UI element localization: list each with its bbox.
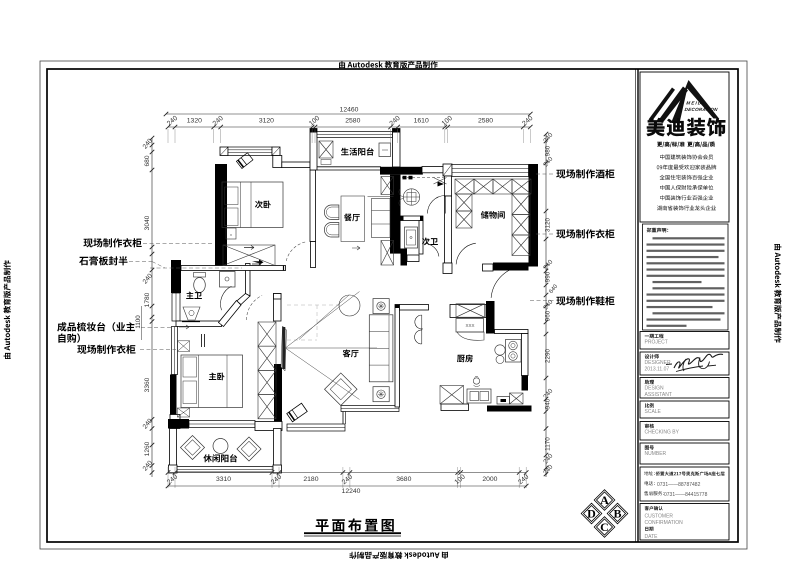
svg-text:CUSTOMER: CUSTOMER [645,514,674,520]
svg-text:1260: 1260 [144,441,151,456]
svg-text:SCALE: SCALE [645,409,662,415]
svg-text:3120: 3120 [259,117,274,124]
svg-text:ASSISTANT: ASSISTANT [645,392,672,398]
svg-text:XXX: XXX [465,323,474,328]
svg-text:12240: 12240 [342,488,361,495]
svg-text:x: x [230,232,232,237]
svg-text:PROJECT: PROJECT [645,340,668,346]
svg-text:980: 980 [545,145,552,156]
svg-text:3310: 3310 [216,476,231,483]
svg-text:3680: 3680 [396,476,411,483]
svg-text:1170: 1170 [545,437,552,451]
svg-text:1780: 1780 [144,292,151,307]
svg-text:3120: 3120 [545,217,552,232]
svg-text:1100: 1100 [135,315,142,329]
svg-text:0731——88787482: 0731——88787482 [657,482,701,488]
svg-text:NUMBER: NUMBER [645,451,667,457]
svg-text:1610: 1610 [414,117,429,124]
svg-text:CHECKING BY: CHECKING BY [645,430,680,436]
svg-text:2000: 2000 [482,476,497,483]
svg-text:2180: 2180 [303,476,318,483]
svg-text:B: B [613,507,621,521]
svg-text:12460: 12460 [340,107,359,114]
svg-text:990: 990 [545,271,552,282]
svg-text:DATE: DATE [645,534,659,540]
svg-text:DESIGN: DESIGN [645,386,665,392]
svg-text:A: A [600,493,609,507]
svg-text:D: D [587,507,596,521]
svg-text:CONFIRMATION: CONFIRMATION [645,520,684,526]
svg-text:2580: 2580 [345,117,360,124]
svg-text:C: C [600,520,609,534]
svg-text:940: 940 [545,398,552,409]
svg-text:DESIGNER: DESIGNER [645,360,672,366]
svg-text:680: 680 [144,155,151,166]
svg-text:2290: 2290 [545,348,552,363]
svg-text:0731——84415778: 0731——84415778 [664,492,708,498]
svg-text:1320: 1320 [187,117,202,124]
svg-text:2013.11.07: 2013.11.07 [645,366,670,372]
svg-text:3040: 3040 [144,215,151,230]
svg-text:3360: 3360 [144,377,151,392]
svg-text:2580: 2580 [478,117,493,124]
svg-text:960: 960 [545,310,552,321]
